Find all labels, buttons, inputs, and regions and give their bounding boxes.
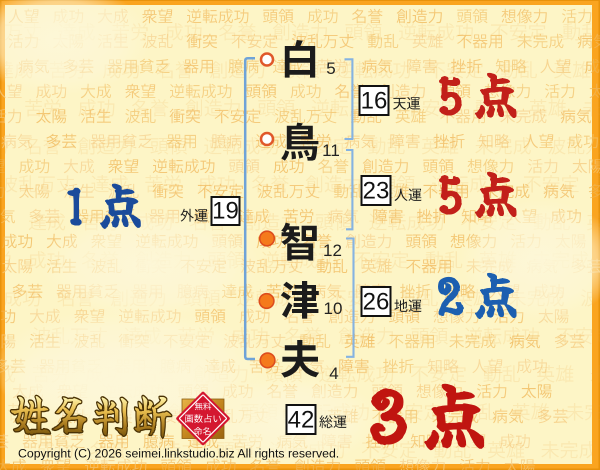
svg-text:10: 10: [324, 299, 343, 318]
svg-text:4: 4: [329, 364, 338, 383]
svg-text:26: 26: [363, 289, 390, 316]
svg-text:12: 12: [323, 241, 342, 260]
svg-text:19: 19: [212, 198, 239, 225]
svg-text:42: 42: [288, 407, 315, 434]
svg-text:Copyright (C) 2026 seimei.link: Copyright (C) 2026 seimei.linkstudio.biz…: [18, 447, 339, 461]
svg-text:16: 16: [361, 88, 388, 115]
svg-text:5: 5: [326, 59, 335, 78]
svg-text:23: 23: [363, 178, 390, 205]
svg-text:11: 11: [322, 141, 340, 160]
